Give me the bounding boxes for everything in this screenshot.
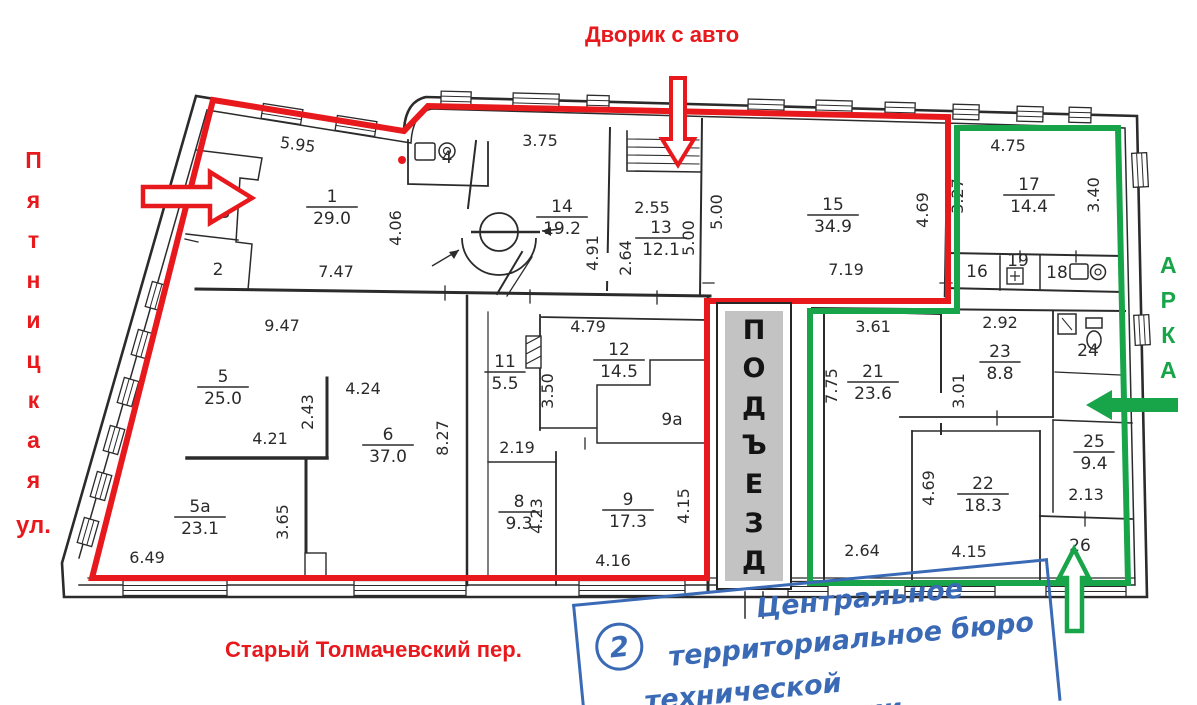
dimension-label: 4.15 [674, 488, 693, 524]
entrance-banner: ПОДЪЕЗД [716, 302, 792, 590]
street-letter: ц [26, 340, 40, 380]
room-label: 16 [966, 262, 988, 282]
building-walls [62, 96, 1147, 618]
dimension-label: 7.19 [828, 260, 864, 279]
dimension-label: 4.16 [595, 551, 631, 570]
arch-letter: Р [1161, 283, 1176, 318]
svg-text:23.6: 23.6 [854, 384, 892, 404]
entrance-letter: Д [742, 546, 766, 577]
window-mark [1017, 106, 1043, 122]
street-letter: н [27, 260, 41, 300]
svg-text:8.8: 8.8 [986, 364, 1013, 384]
svg-text:23.1: 23.1 [181, 519, 219, 539]
dimension-label: 5.00 [707, 194, 726, 230]
svg-text:8: 8 [514, 492, 525, 512]
room-label: 24 [1077, 341, 1099, 361]
room-label: 18 [1046, 263, 1068, 283]
dimension-label: 3.65 [273, 504, 292, 540]
svg-text:9.4: 9.4 [1080, 454, 1107, 474]
svg-text:17.3: 17.3 [609, 512, 647, 532]
dimension-label: 4.69 [919, 470, 938, 506]
dimension-label: 9.47 [264, 316, 300, 335]
entrance-letter: П [743, 315, 766, 346]
svg-text:29.0: 29.0 [313, 209, 351, 229]
svg-text:17: 17 [1018, 175, 1040, 195]
dimension-label: 4.91 [583, 235, 602, 271]
svg-text:25: 25 [1083, 432, 1105, 452]
svg-text:5.5: 5.5 [491, 374, 518, 394]
dimension-label: 2.13 [1068, 485, 1104, 504]
svg-text:37.0: 37.0 [369, 447, 407, 467]
dimension-label: 4.79 [570, 317, 606, 336]
street-letter: к [28, 380, 40, 420]
svg-text:5: 5 [218, 367, 229, 387]
svg-text:18.3: 18.3 [964, 496, 1002, 516]
stamp-number: 2 [593, 620, 645, 672]
entrance-letter: Д [742, 392, 766, 423]
street-letter: т [28, 220, 39, 260]
dimension-label: 2.64 [844, 541, 880, 560]
dimension-label: 6.49 [129, 548, 165, 567]
svg-text:16: 16 [966, 262, 988, 282]
entrance-letter: Ъ [741, 430, 766, 461]
street-letter: и [26, 300, 40, 340]
svg-text:6: 6 [383, 425, 394, 445]
dimension-label: 2.55 [634, 198, 670, 217]
dimension-label: 4.24 [345, 379, 381, 398]
street-left-label: Пятницкаяул. [16, 140, 51, 540]
svg-text:9а: 9а [661, 410, 682, 430]
dimension-label: 3.61 [855, 317, 891, 336]
svg-text:4: 4 [442, 148, 453, 168]
courtyard-label: Дворик с авто [585, 22, 739, 48]
dimension-label: 2.43 [298, 394, 317, 430]
window-mark [1069, 107, 1091, 123]
street-letter: я [27, 460, 40, 500]
entrance-banner-letters: ПОДЪЕЗД [725, 311, 783, 581]
svg-text:1: 1 [327, 187, 338, 207]
window-mark [1132, 153, 1149, 188]
svg-text:23: 23 [989, 342, 1011, 362]
red-dot [398, 156, 406, 164]
dimension-label: 8.27 [433, 420, 452, 456]
dimension-label: 3.01 [949, 373, 968, 409]
arch-letter: А [1160, 248, 1177, 283]
window-mark [953, 104, 979, 120]
entrance-letter: З [744, 508, 763, 539]
street-letter: П [25, 140, 42, 180]
svg-text:13: 13 [650, 218, 672, 238]
svg-text:24: 24 [1077, 341, 1099, 361]
room-label: 4 [442, 148, 453, 168]
svg-text:14.5: 14.5 [600, 362, 638, 382]
dimension-label: 7.75 [822, 368, 841, 404]
dimension-label: 3.40 [1084, 177, 1103, 213]
svg-text:34.9: 34.9 [814, 217, 852, 237]
svg-text:5а: 5а [189, 497, 210, 517]
dimension-label: 4.21 [252, 429, 288, 448]
svg-text:18: 18 [1046, 263, 1068, 283]
dimension-label: 4.75 [990, 136, 1026, 155]
dimension-label: 5.00 [679, 220, 698, 256]
room-label: 9а [661, 410, 682, 430]
window-mark [579, 581, 685, 596]
svg-text:14: 14 [551, 197, 573, 217]
toilet-room18 [1070, 264, 1106, 280]
svg-text:19.2: 19.2 [543, 219, 581, 239]
street-bottom-label: Старый Толмачевский пер. [225, 637, 522, 663]
street-letter: я [27, 180, 40, 220]
arch-letter: К [1161, 318, 1175, 353]
svg-text:11: 11 [494, 352, 516, 372]
floor-plan-canvas: 129.0234525.05а23.1637.089.3917.39а115.5… [0, 0, 1197, 705]
entrance-letter: Е [745, 469, 763, 500]
svg-text:19: 19 [1007, 251, 1029, 271]
dimension-label: 7.47 [318, 262, 354, 281]
dimension-label: 2.92 [982, 313, 1018, 332]
svg-text:22: 22 [972, 474, 994, 494]
street-letter: а [27, 420, 40, 460]
arch-label: АРКА [1160, 248, 1177, 388]
arch-letter: А [1160, 353, 1177, 388]
svg-text:2: 2 [213, 260, 224, 280]
hatched-box [526, 336, 541, 368]
svg-text:21: 21 [862, 362, 884, 382]
window-mark [123, 581, 227, 596]
svg-text:12: 12 [608, 340, 630, 360]
street-suffix: ул. [16, 512, 51, 540]
svg-text:9: 9 [623, 490, 634, 510]
room-label: 2 [213, 260, 224, 280]
dimension-label: 2.19 [499, 438, 535, 457]
svg-text:25.0: 25.0 [204, 389, 242, 409]
room-label: 19 [1007, 251, 1029, 271]
svg-text:14.4: 14.4 [1010, 197, 1048, 217]
window-mark [1134, 315, 1151, 346]
window-mark [354, 581, 466, 596]
svg-text:15: 15 [822, 195, 844, 215]
dimension-label: 2.64 [616, 240, 635, 276]
dimension-label: 4.69 [913, 192, 932, 228]
dimension-label: 4.06 [386, 210, 405, 246]
dimension-label: 3.75 [522, 131, 558, 150]
dimension-label: 4.15 [951, 542, 987, 561]
entrance-letter: О [743, 353, 766, 384]
svg-text:12.1: 12.1 [642, 240, 680, 260]
dimension-label: 4.23 [527, 498, 546, 534]
dimension-label: 3.50 [538, 373, 557, 409]
